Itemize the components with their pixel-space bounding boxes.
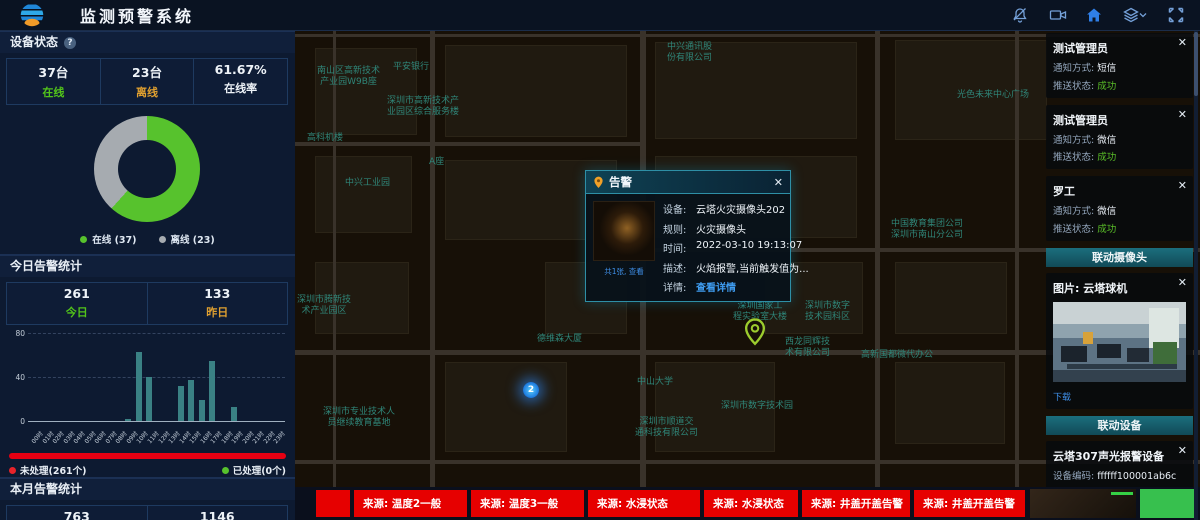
camera-section-header[interactable]: 联动摄像头 (1046, 248, 1193, 267)
map-label: 高科机楼 (307, 133, 343, 144)
alert-source-tile[interactable]: 来源: 温度2一般 (354, 490, 467, 517)
camera-icon[interactable] (1049, 6, 1067, 24)
popup-field-value: 火灾摄像头 (696, 221, 746, 236)
stat-label: 离线 (101, 84, 194, 100)
header-toolbar (1012, 0, 1186, 30)
map-label: 深圳市顺道交 通科技有限公司 (635, 417, 698, 439)
month-stat-cell: 763 (6, 505, 148, 520)
chevron-down-icon (1139, 11, 1147, 19)
map-label: 中兴通讯股 份有限公司 (667, 42, 712, 64)
legend-dot (9, 467, 16, 474)
bar (125, 419, 131, 421)
section-title: 今日告警统计 (10, 256, 82, 277)
map-label: 中兴工业园 (345, 178, 390, 189)
notification-card: ✕测试管理员通知方式: 微信推送状态: 成功 (1046, 105, 1193, 170)
popup-field-row: 设备:云塔火灾摄像头202 (663, 201, 809, 216)
card-title: 云塔307声光报警设备 (1053, 448, 1186, 464)
alert-popup: 告警 ✕ 共1张, 查看 设备:云塔火灾摄像头202规则:火灾摄像头时间:202… (585, 170, 791, 302)
map-building (445, 45, 627, 137)
popup-field-value: 云塔火灾摄像头202 (696, 201, 785, 216)
stat-value: 763 (7, 509, 147, 520)
popup-field-row: 详情:查看详情 (663, 279, 809, 294)
notification-card: ✕罗工通知方式: 微信推送状态: 成功 (1046, 176, 1193, 241)
map-road (333, 30, 336, 520)
home-icon[interactable] (1086, 6, 1104, 24)
progress-legend-item: 未处理(261个) (9, 463, 87, 477)
bell-icon[interactable] (1012, 6, 1030, 24)
card-title: 罗工 (1053, 183, 1186, 199)
alarm-progress: 未处理(261个)已处理(0个) (9, 453, 286, 477)
map-label: 光色未来中心广场 (957, 90, 1029, 101)
alert-popup-title: 告警 (609, 174, 769, 190)
map-label: 中国教育集团公司 深圳市南山分公司 (891, 219, 963, 241)
stat-label: 在线率 (194, 80, 287, 96)
card-row-value: 短信 (1097, 63, 1116, 74)
donut-hole (118, 140, 176, 198)
alert-popup-body: 共1张, 查看 设备:云塔火灾摄像头202规则:火灾摄像头时间:2022-03-… (586, 194, 790, 299)
alert-source-tile[interactable]: 来源: 井盖开盖告警 (914, 490, 1025, 517)
bar (178, 386, 184, 421)
map-label: A座 (429, 157, 444, 168)
camera-snapshot-card: ✕ 图片: 云塔球机 下载 (1046, 273, 1193, 409)
card-row: 通知方式: 微信 (1053, 132, 1186, 146)
camera-snapshot-image[interactable] (1053, 302, 1186, 382)
layers-icon[interactable] (1123, 6, 1149, 24)
bar (231, 407, 237, 421)
device-status-stats: 37台在线23台离线61.67%在线率 (7, 58, 288, 105)
section-today-alarms-header: 今日告警统计 (0, 254, 295, 277)
page-title: 监测预警系统 (80, 3, 194, 27)
map-label: 南山区高新技术 产业园W9B座 (317, 66, 380, 88)
video-thumbnail[interactable] (1030, 489, 1136, 518)
donut-ring (94, 116, 200, 222)
legend-label: 在线 (37) (92, 232, 136, 246)
map-cluster-marker[interactable]: 2 (523, 382, 539, 398)
alert-snapshot-caption[interactable]: 共1张, 查看 (593, 266, 655, 277)
gridline (28, 333, 285, 334)
alert-source-tile[interactable]: 来源: 水浸状态 (704, 490, 798, 517)
map-label: 平安银行 (393, 62, 429, 73)
device-section-header[interactable]: 联动设备 (1046, 416, 1193, 435)
legend-item: 离线 (23) (159, 232, 215, 246)
today-stat-cell: 133昨日 (147, 282, 289, 325)
bar (136, 352, 142, 421)
right-linkage-panel: ✕测试管理员通知方式: 短信推送状态: 成功✕测试管理员通知方式: 微信推送状态… (1046, 33, 1193, 520)
help-icon[interactable]: ? (64, 37, 76, 49)
camera-card-title: 图片: 云塔球机 (1053, 280, 1186, 296)
bar-chart-plot: 0408000时01时02时03时04时05时06时07时08时09时10时11… (28, 333, 285, 422)
alert-snapshot-image[interactable] (593, 201, 655, 261)
hourly-alarm-bar-chart: 0408000时01时02时03时04时05时06时07时08时09时10时11… (8, 329, 287, 451)
popup-field-row: 描述:火焰报警,当前触发值为... (663, 260, 809, 275)
legend-dot (80, 236, 87, 243)
section-title: 本月告警统计 (10, 479, 82, 500)
popup-field-label: 规则: (663, 221, 696, 236)
alert-source-tile[interactable]: 来源: 温度3一般 (471, 490, 584, 517)
stat-value: 23台 (101, 62, 194, 81)
card-row: 通知方式: 短信 (1053, 60, 1186, 74)
close-icon[interactable]: ✕ (1178, 37, 1187, 48)
y-axis-tick: 0 (9, 417, 25, 426)
device-stat-cell: 37台在线 (6, 58, 101, 105)
map-building (895, 262, 1007, 334)
device-donut-chart: 在线 (37)离线 (23) (0, 108, 295, 254)
legend-dot (222, 467, 229, 474)
popup-field-row: 规则:火灾摄像头 (663, 221, 809, 236)
download-link[interactable]: 下载 (1053, 390, 1186, 403)
close-icon[interactable]: ✕ (1178, 180, 1187, 191)
card-row-value: 微信 (1097, 206, 1116, 217)
card-row-value: 成功 (1097, 152, 1116, 163)
rec-indicator (1111, 492, 1133, 495)
alert-source-tile[interactable]: 来源: 水浸状态 (588, 490, 700, 517)
bar (199, 400, 205, 421)
month-stat-cell: 1146 (147, 505, 289, 520)
popup-field-value: 2022-03-10 19:13:07 (696, 240, 802, 255)
y-axis-tick: 40 (9, 373, 25, 382)
fullscreen-icon[interactable] (1168, 6, 1186, 24)
card-row-value: 成功 (1097, 81, 1116, 92)
close-icon[interactable]: ✕ (1178, 445, 1187, 456)
alert-source-tile[interactable]: 来源: 井盖开盖告警 (802, 490, 910, 517)
map-label: 深圳市专业技术人 员继续教育基地 (323, 407, 395, 429)
close-icon[interactable]: ✕ (1178, 277, 1187, 288)
popup-field-row: 时间:2022-03-10 19:13:07 (663, 240, 809, 255)
map-pin-icon[interactable] (743, 318, 767, 350)
alert-popup-titlebar: 告警 ✕ (586, 171, 790, 194)
legend-dot (159, 236, 166, 243)
stat-label: 昨日 (148, 304, 288, 320)
map-label: 中山大学 (637, 377, 673, 388)
close-icon[interactable]: ✕ (774, 177, 783, 188)
unhandled-progress-bar (9, 453, 286, 459)
card-row: 通知方式: 微信 (1053, 203, 1186, 217)
left-stats-panel: 设备状态 ? 37台在线23台离线61.67%在线率 在线 (37)离线 (23… (0, 30, 295, 520)
popup-field-label: 时间: (663, 240, 696, 255)
map-label: 深圳市数字技术园 (721, 401, 793, 412)
bar (146, 377, 152, 421)
app-header: 监测预警系统 (0, 0, 1200, 31)
map-building (315, 156, 412, 233)
card-title: 测试管理员 (1053, 112, 1186, 128)
map-label: 深圳市数字 技术园科区 (805, 301, 850, 323)
popup-field-label: 详情: (663, 279, 696, 294)
card-row-value: 成功 (1097, 224, 1116, 235)
view-detail-link[interactable]: 查看详情 (696, 279, 736, 294)
map-building (895, 362, 1005, 444)
legend-label: 离线 (23) (171, 232, 215, 246)
card-row: 推送状态: 成功 (1053, 149, 1186, 163)
alert-source-tile[interactable] (316, 490, 350, 517)
today-stat-cell: 261今日 (6, 282, 148, 325)
card-row: 推送状态: 成功 (1053, 221, 1186, 235)
y-axis-tick: 80 (9, 329, 25, 338)
legend-label: 已处理(0个) (233, 463, 286, 477)
bar (209, 361, 215, 422)
stat-value: 133 (148, 286, 288, 301)
popup-field-label: 设备: (663, 201, 696, 216)
legend-label: 未处理(261个) (20, 463, 87, 477)
scrollbar-track[interactable] (1194, 30, 1198, 520)
map-building (445, 362, 567, 452)
app-logo (20, 3, 44, 27)
card-row: 推送状态: 成功 (1053, 78, 1186, 92)
donut-legend: 在线 (37)离线 (23) (0, 232, 295, 246)
notification-card: ✕测试管理员通知方式: 短信推送状态: 成功 (1046, 33, 1193, 98)
device-stat-cell: 61.67%在线率 (193, 58, 288, 105)
stat-value: 1146 (148, 509, 288, 520)
video-thumbnail-green[interactable] (1140, 489, 1198, 518)
map-road (1015, 30, 1019, 520)
popup-field-label: 描述: (663, 260, 696, 275)
map-road (295, 142, 645, 146)
bottom-alert-bar: 来源: 温度2一般来源: 温度3一般来源: 水浸状态来源: 水浸状态来源: 井盖… (295, 487, 1200, 520)
map-road (875, 30, 880, 520)
close-icon[interactable]: ✕ (1178, 109, 1187, 120)
map-label: 深圳市高新技术产 业园区综合服务楼 (387, 96, 459, 118)
stat-label: 在线 (7, 84, 100, 100)
month-alarm-stats: 7631146 (7, 505, 288, 520)
gridline (28, 377, 285, 378)
progress-legend: 未处理(261个)已处理(0个) (9, 463, 286, 477)
map-label: 高新国都微代办公 (861, 350, 933, 361)
stat-value: 37台 (7, 62, 100, 81)
legend-item: 在线 (37) (80, 232, 136, 246)
device-stat-cell: 23台离线 (100, 58, 195, 105)
stat-value: 61.67% (194, 62, 287, 77)
card-title: 测试管理员 (1053, 40, 1186, 56)
card-row-value: ffffff100001ab6c (1097, 471, 1176, 482)
scrollbar-thumb[interactable] (1194, 32, 1198, 96)
alert-popup-fields: 设备:云塔火灾摄像头202规则:火灾摄像头时间:2022-03-10 19:13… (663, 201, 809, 299)
today-alarm-stats: 261今日133昨日 (7, 282, 288, 325)
monitoring-dashboard: 南山区高新技术 产业园W9B座平安银行深圳市高新技术产 业园区综合服务楼高科机楼… (0, 0, 1200, 520)
map-label: 西龙同辉技 术有限公司 (785, 337, 830, 359)
stat-label: 今日 (7, 304, 147, 320)
map-label: 深圳市腾新技 术产业园区 (297, 295, 351, 317)
stat-value: 261 (7, 286, 147, 301)
bar (188, 380, 194, 421)
progress-legend-item: 已处理(0个) (222, 463, 286, 477)
section-month-alarms-header: 本月告警统计 (0, 477, 295, 500)
alarm-pin-icon (593, 176, 604, 189)
popup-field-value: 火焰报警,当前触发值为... (696, 260, 809, 275)
map-label: 德维森大厦 (537, 334, 582, 345)
section-title: 设备状态 (10, 32, 58, 53)
card-row-value: 微信 (1097, 135, 1116, 146)
card-row: 设备编码: ffffff100001ab6c (1053, 468, 1186, 482)
section-device-status-header: 设备状态 ? (0, 30, 295, 53)
